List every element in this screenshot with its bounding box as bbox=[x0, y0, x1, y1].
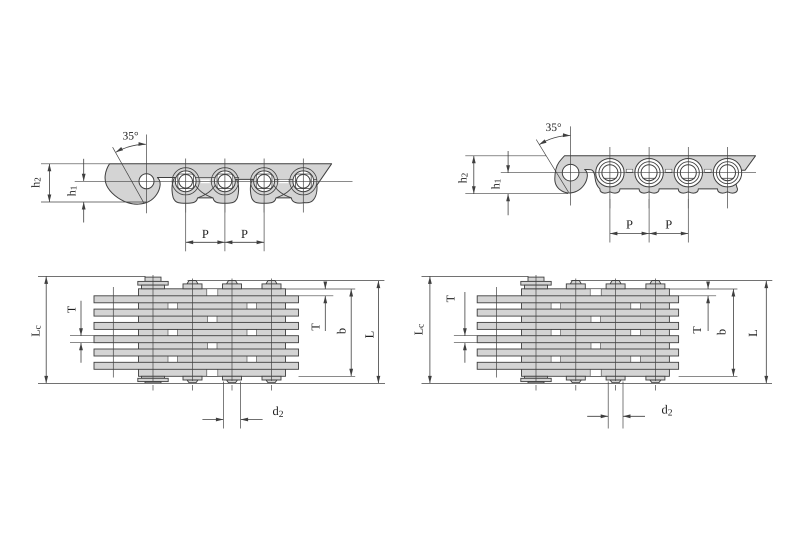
svg-text:h1: h1 bbox=[488, 179, 502, 190]
svg-text:Lc: Lc bbox=[411, 324, 426, 336]
svg-text:T: T bbox=[308, 323, 322, 331]
svg-text:T: T bbox=[690, 326, 704, 334]
svg-text:T: T bbox=[64, 305, 78, 313]
svg-text:P: P bbox=[626, 218, 633, 232]
svg-text:b: b bbox=[714, 329, 728, 335]
svg-text:P: P bbox=[241, 227, 248, 241]
svg-text:P: P bbox=[202, 227, 209, 241]
svg-text:d2: d2 bbox=[273, 404, 284, 420]
svg-text:L: L bbox=[362, 331, 376, 339]
svg-text:T: T bbox=[443, 294, 457, 302]
svg-text:h2: h2 bbox=[28, 177, 42, 188]
svg-text:d2: d2 bbox=[662, 403, 673, 419]
svg-text:b: b bbox=[334, 328, 348, 334]
svg-text:Lc: Lc bbox=[28, 325, 43, 337]
svg-text:h1: h1 bbox=[64, 186, 78, 197]
svg-text:L: L bbox=[746, 329, 760, 337]
svg-text:35°: 35° bbox=[123, 130, 140, 142]
svg-text:35°: 35° bbox=[545, 122, 562, 134]
svg-text:h2: h2 bbox=[455, 173, 469, 184]
svg-text:P: P bbox=[665, 218, 672, 232]
